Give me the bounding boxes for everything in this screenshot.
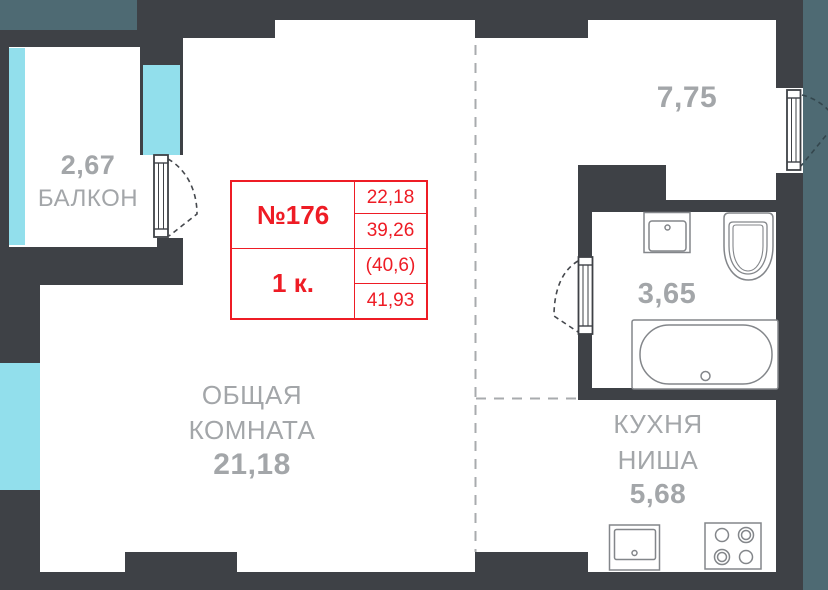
area-value: 22,18 — [355, 182, 426, 214]
kitchen-sink-icon — [610, 525, 660, 570]
bathroom-label: 3,65 — [597, 276, 737, 314]
area-value: (40,6) — [355, 249, 426, 284]
living-room-label: ОБЩАЯ КОМНАТА 21,18 — [162, 378, 342, 482]
stove-burners-icon — [705, 523, 761, 569]
floor-plan: 2,67 БАЛКОН ОБЩАЯ КОМНАТА 21,18 7,75 3,6… — [0, 0, 828, 590]
area-value: 41,93 — [355, 284, 426, 318]
balcony-area: 2,67 — [8, 148, 168, 183]
room-775-label: 7,75 — [617, 78, 757, 117]
balcony-name: БАЛКОН — [8, 183, 168, 214]
toilet-icon — [724, 213, 773, 280]
sink-icon — [644, 213, 690, 253]
area-value: 39,26 — [355, 214, 426, 249]
room-count: 1 к. — [232, 249, 355, 318]
living-room-area: 21,18 — [162, 448, 342, 482]
dashed-zone-divider — [476, 45, 579, 552]
bathroom-door-icon — [554, 257, 593, 334]
bathtub-icon — [632, 320, 778, 389]
kitchen-name: КУХНЯ НИША — [588, 406, 728, 478]
balcony-label: 2,67 БАЛКОН — [8, 148, 168, 214]
exterior-door-icon — [787, 90, 828, 170]
room-775-area: 7,75 — [617, 78, 757, 117]
kitchen-label: КУХНЯ НИША 5,68 — [588, 406, 728, 510]
kitchen-area: 5,68 — [588, 478, 728, 510]
bathroom-area: 3,65 — [597, 276, 737, 314]
apartment-info-table: №176 22,18 39,26 1 к. (40,6) 41,93 — [230, 180, 428, 320]
apartment-number: №176 — [232, 182, 355, 249]
living-room-name: ОБЩАЯ КОМНАТА — [162, 378, 342, 448]
